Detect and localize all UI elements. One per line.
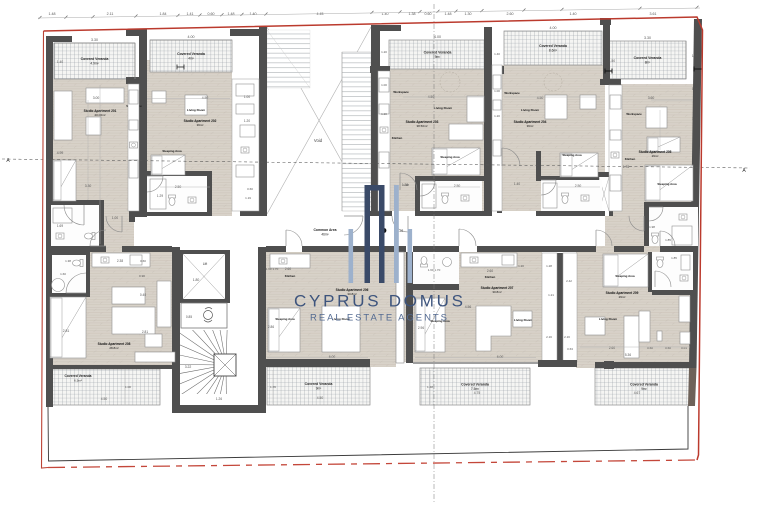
svg-text:1.78: 1.78 bbox=[623, 165, 629, 169]
svg-text:1.20: 1.20 bbox=[381, 112, 387, 116]
svg-text:1.20: 1.20 bbox=[518, 264, 524, 268]
svg-text:Covered Veranda: Covered Veranda bbox=[630, 383, 658, 387]
svg-text:A: A bbox=[742, 168, 746, 174]
svg-text:CYPRUS DOMUS: CYPRUS DOMUS bbox=[294, 292, 463, 311]
svg-text:30.8m²: 30.8m² bbox=[492, 290, 501, 294]
svg-text:Covered Veranda: Covered Veranda bbox=[634, 56, 662, 60]
svg-text:0.90: 0.90 bbox=[139, 274, 145, 278]
svg-text:2.81: 2.81 bbox=[63, 329, 70, 333]
svg-text:1.00: 1.00 bbox=[244, 95, 250, 99]
svg-text:2.50: 2.50 bbox=[454, 184, 461, 188]
svg-text:1.30: 1.30 bbox=[465, 12, 472, 16]
svg-text:1.00: 1.00 bbox=[125, 385, 131, 389]
svg-text:1.20: 1.20 bbox=[244, 119, 250, 123]
svg-text:2.60: 2.60 bbox=[487, 269, 493, 273]
svg-text:3.60: 3.60 bbox=[648, 96, 655, 100]
svg-text:3.61: 3.61 bbox=[650, 12, 657, 16]
svg-text:1.60: 1.60 bbox=[60, 272, 66, 276]
svg-text:2.16: 2.16 bbox=[564, 335, 570, 339]
svg-text:4.50: 4.50 bbox=[202, 96, 209, 100]
svg-text:36m²: 36m² bbox=[197, 123, 204, 127]
svg-text:4.67: 4.67 bbox=[634, 391, 641, 395]
svg-text:0.60: 0.60 bbox=[247, 187, 253, 191]
svg-text:1.20: 1.20 bbox=[381, 50, 387, 54]
svg-text:Living Room: Living Room bbox=[434, 106, 452, 110]
svg-text:4.00: 4.00 bbox=[550, 26, 557, 30]
svg-text:2.86: 2.86 bbox=[268, 325, 274, 329]
svg-text:6.3m²: 6.3m² bbox=[74, 379, 82, 383]
svg-text:1.60 1.70: 1.60 1.70 bbox=[266, 267, 279, 271]
svg-text:Living Room: Living Room bbox=[514, 318, 532, 322]
svg-text:2.38: 2.38 bbox=[117, 259, 123, 263]
svg-text:4.00: 4.00 bbox=[188, 35, 195, 39]
svg-text:1.28: 1.28 bbox=[546, 264, 552, 268]
svg-text:3.00: 3.00 bbox=[93, 96, 100, 100]
svg-text:0.63: 0.63 bbox=[567, 347, 573, 351]
svg-text:2.16: 2.16 bbox=[546, 335, 552, 339]
svg-text:38.50m²: 38.50m² bbox=[416, 124, 427, 128]
svg-text:Kitchen: Kitchen bbox=[285, 274, 296, 278]
svg-text:1.48: 1.48 bbox=[228, 12, 235, 16]
svg-text:Sleeping Area: Sleeping Area bbox=[615, 274, 635, 278]
svg-text:1.40: 1.40 bbox=[514, 182, 520, 186]
svg-text:0.60: 0.60 bbox=[647, 346, 653, 350]
svg-text:9m²: 9m² bbox=[435, 55, 441, 59]
svg-text:2.81: 2.81 bbox=[142, 330, 148, 334]
svg-text:1.40: 1.40 bbox=[494, 52, 500, 56]
svg-text:Covered Veranda: Covered Veranda bbox=[424, 51, 452, 55]
svg-text:4.50: 4.50 bbox=[317, 396, 324, 400]
svg-text:3.30: 3.30 bbox=[644, 36, 651, 40]
svg-text:1.26: 1.26 bbox=[216, 397, 222, 401]
svg-text:1.85: 1.85 bbox=[671, 256, 677, 260]
svg-text:1.00: 1.00 bbox=[112, 216, 118, 220]
svg-text:4.00: 4.00 bbox=[434, 35, 441, 39]
svg-text:REAL ESTATE AGENTS: REAL ESTATE AGENTS bbox=[310, 313, 447, 324]
svg-text:2.60: 2.60 bbox=[609, 346, 615, 350]
svg-text:2.50: 2.50 bbox=[575, 184, 582, 188]
svg-text:1.40: 1.40 bbox=[570, 12, 577, 16]
svg-text:6.00: 6.00 bbox=[497, 355, 504, 359]
svg-text:1.00: 1.00 bbox=[692, 54, 698, 58]
svg-text:Covered Veranda: Covered Veranda bbox=[305, 382, 333, 386]
svg-text:29m²: 29m² bbox=[619, 295, 626, 299]
svg-text:Sleeping Area: Sleeping Area bbox=[657, 182, 677, 186]
svg-text:1.48: 1.48 bbox=[49, 12, 56, 16]
svg-text:0.40: 0.40 bbox=[140, 293, 146, 297]
svg-text:1.80: 1.80 bbox=[193, 278, 200, 282]
svg-text:Common Area: Common Area bbox=[313, 228, 336, 232]
svg-text:3.30: 3.30 bbox=[91, 38, 98, 42]
svg-text:Sleeping Area: Sleeping Area bbox=[275, 317, 295, 321]
svg-text:0.60: 0.60 bbox=[140, 259, 146, 263]
svg-text:1.40: 1.40 bbox=[57, 60, 63, 64]
svg-text:36m²: 36m² bbox=[527, 124, 534, 128]
svg-text:Living Room: Living Room bbox=[599, 317, 617, 321]
svg-text:3.22: 3.22 bbox=[185, 365, 192, 369]
svg-text:0.85: 0.85 bbox=[186, 315, 192, 319]
svg-text:Void: Void bbox=[314, 138, 323, 143]
svg-text:1.40: 1.40 bbox=[250, 12, 257, 16]
svg-text:1.00: 1.00 bbox=[494, 89, 500, 93]
svg-text:Living Room: Living Room bbox=[521, 108, 539, 112]
svg-text:28.8m²: 28.8m² bbox=[109, 346, 118, 350]
svg-text:1.98: 1.98 bbox=[649, 225, 655, 229]
svg-text:1.00: 1.00 bbox=[381, 83, 387, 87]
svg-text:Kitchen: Kitchen bbox=[485, 275, 496, 279]
svg-text:Workspace: Workspace bbox=[626, 112, 642, 116]
svg-text:29m²: 29m² bbox=[652, 154, 659, 158]
svg-text:1.84: 1.84 bbox=[160, 12, 167, 16]
svg-text:2.11: 2.11 bbox=[107, 12, 114, 16]
svg-text:4.75: 4.75 bbox=[474, 391, 481, 395]
svg-text:1.48: 1.48 bbox=[445, 12, 452, 16]
svg-text:Sleeping Area: Sleeping Area bbox=[440, 155, 460, 159]
svg-text:Sleeping Area: Sleeping Area bbox=[162, 149, 182, 153]
svg-text:6.00: 6.00 bbox=[329, 355, 336, 359]
svg-text:1.38: 1.38 bbox=[65, 259, 71, 263]
svg-text:1.85: 1.85 bbox=[665, 238, 671, 242]
svg-text:1.29: 1.29 bbox=[157, 194, 163, 198]
svg-text:1.41: 1.41 bbox=[187, 12, 194, 16]
svg-text:Kitchen: Kitchen bbox=[392, 136, 403, 140]
svg-text:Kitchen: Kitchen bbox=[625, 157, 636, 161]
svg-text:4.50: 4.50 bbox=[537, 96, 544, 100]
svg-text:1.38: 1.38 bbox=[402, 183, 408, 187]
svg-text:1.00: 1.00 bbox=[692, 87, 698, 91]
svg-text:Sleeping Area: Sleeping Area bbox=[562, 153, 582, 157]
svg-text:Covered Veranda: Covered Veranda bbox=[177, 52, 205, 56]
svg-text:4m²: 4m² bbox=[188, 57, 194, 61]
svg-text:5.36: 5.36 bbox=[625, 353, 631, 357]
svg-text:Lift: Lift bbox=[203, 262, 207, 266]
svg-text:8m²: 8m² bbox=[645, 61, 651, 65]
svg-text:2.60: 2.60 bbox=[285, 267, 291, 271]
svg-text:9m²: 9m² bbox=[316, 387, 322, 391]
svg-text:1.69: 1.69 bbox=[57, 224, 63, 228]
svg-text:1.20: 1.20 bbox=[692, 117, 698, 121]
svg-text:2.42: 2.42 bbox=[566, 279, 572, 283]
svg-text:9m²: 9m² bbox=[641, 387, 647, 391]
svg-text:4.50: 4.50 bbox=[101, 397, 108, 401]
svg-text:4.99: 4.99 bbox=[57, 151, 64, 155]
svg-text:4.56: 4.56 bbox=[465, 305, 472, 309]
svg-text:2.60: 2.60 bbox=[507, 12, 514, 16]
svg-text:0.60: 0.60 bbox=[665, 346, 671, 350]
svg-text:1.20: 1.20 bbox=[494, 114, 500, 118]
svg-text:Workspace: Workspace bbox=[393, 90, 409, 94]
svg-text:4.9m²: 4.9m² bbox=[90, 62, 98, 66]
svg-text:0.01: 0.01 bbox=[681, 346, 687, 350]
svg-text:1.50: 1.50 bbox=[609, 59, 615, 63]
svg-text:Living Room: Living Room bbox=[187, 108, 205, 112]
svg-text:Covered Veranda: Covered Veranda bbox=[81, 57, 109, 61]
svg-text:46m²: 46m² bbox=[321, 233, 328, 237]
svg-text:2.96: 2.96 bbox=[418, 326, 424, 330]
svg-text:Covered Veranda: Covered Veranda bbox=[461, 383, 489, 387]
svg-text:Workspace: Workspace bbox=[504, 91, 520, 95]
svg-text:1.19: 1.19 bbox=[245, 196, 251, 200]
svg-text:1.21: 1.21 bbox=[548, 293, 554, 297]
svg-text:8.6m²: 8.6m² bbox=[549, 49, 557, 53]
svg-text:Covered Veranda: Covered Veranda bbox=[65, 374, 92, 378]
svg-text:0.60: 0.60 bbox=[425, 12, 432, 16]
svg-text:Covered Veranda: Covered Veranda bbox=[539, 44, 567, 48]
